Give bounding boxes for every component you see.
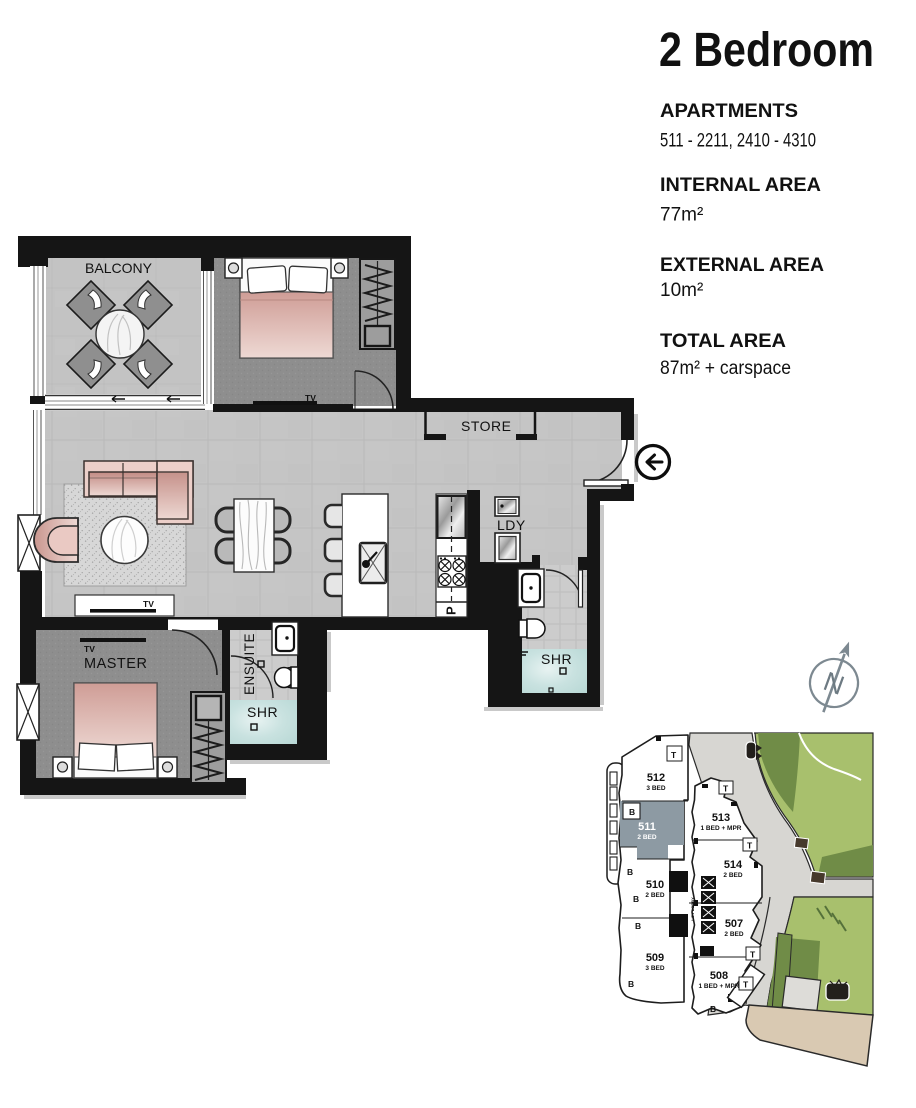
svg-text:T: T [750, 950, 756, 960]
svg-text:B: B [628, 979, 634, 989]
svg-text:T: T [743, 980, 749, 990]
svg-text:P: P [444, 606, 459, 615]
svg-text:507: 507 [725, 918, 743, 930]
svg-text:MASTER: MASTER [84, 656, 147, 672]
svg-text:77m²: 77m² [660, 205, 703, 226]
svg-text:513: 513 [712, 812, 730, 824]
svg-text:514: 514 [724, 859, 743, 871]
svg-text:B: B [627, 867, 633, 877]
svg-text:TOTAL AREA: TOTAL AREA [660, 331, 786, 352]
svg-text:SHR: SHR [247, 704, 278, 720]
svg-text:APARTMENTS: APARTMENTS [660, 101, 798, 122]
svg-text:2 BED: 2 BED [645, 892, 664, 899]
svg-text:2 BED: 2 BED [637, 834, 656, 841]
svg-text:T: T [747, 841, 753, 851]
svg-text:TV: TV [84, 644, 95, 654]
svg-text:SHR: SHR [541, 651, 572, 667]
svg-text:B: B [635, 921, 641, 931]
svg-text:B: B [710, 1004, 716, 1014]
svg-text:511: 511 [638, 821, 656, 833]
svg-text:3 BED: 3 BED [646, 785, 665, 792]
svg-text:ENSUITE: ENSUITE [242, 633, 257, 695]
svg-text:2 Bedroom: 2 Bedroom [659, 24, 874, 77]
svg-text:510: 510 [646, 879, 664, 891]
svg-text:10m²: 10m² [660, 280, 703, 301]
svg-text:B: B [633, 894, 639, 904]
svg-text:N: N [820, 666, 849, 701]
svg-text:1 BED + MPR: 1 BED + MPR [699, 983, 740, 990]
svg-text:TV: TV [143, 599, 154, 609]
svg-text:3 BED: 3 BED [645, 965, 664, 972]
svg-text:BALCONY: BALCONY [85, 260, 153, 276]
svg-text:509: 509 [646, 952, 664, 964]
svg-text:LDY: LDY [497, 517, 526, 533]
svg-text:1 BED + MPR: 1 BED + MPR [701, 825, 742, 832]
svg-text:87m² + carspace: 87m² + carspace [660, 358, 791, 379]
svg-text:LIFT LOBBY: LIFT LOBBY [690, 897, 695, 921]
svg-text:508: 508 [710, 970, 728, 982]
svg-text:512: 512 [647, 772, 665, 784]
svg-text:INTERNAL AREA: INTERNAL AREA [660, 175, 821, 196]
svg-text:T: T [671, 750, 677, 760]
svg-text:2 BED: 2 BED [723, 872, 742, 879]
svg-text:EXTERNAL AREA: EXTERNAL AREA [660, 255, 824, 276]
svg-text:STORE: STORE [461, 418, 511, 434]
svg-text:511 - 2211, 2410 - 4310: 511 - 2211, 2410 - 4310 [660, 131, 816, 152]
svg-text:T: T [723, 784, 729, 794]
svg-text:B: B [629, 807, 635, 817]
svg-text:TV: TV [305, 393, 316, 403]
svg-text:2 BED: 2 BED [724, 931, 743, 938]
